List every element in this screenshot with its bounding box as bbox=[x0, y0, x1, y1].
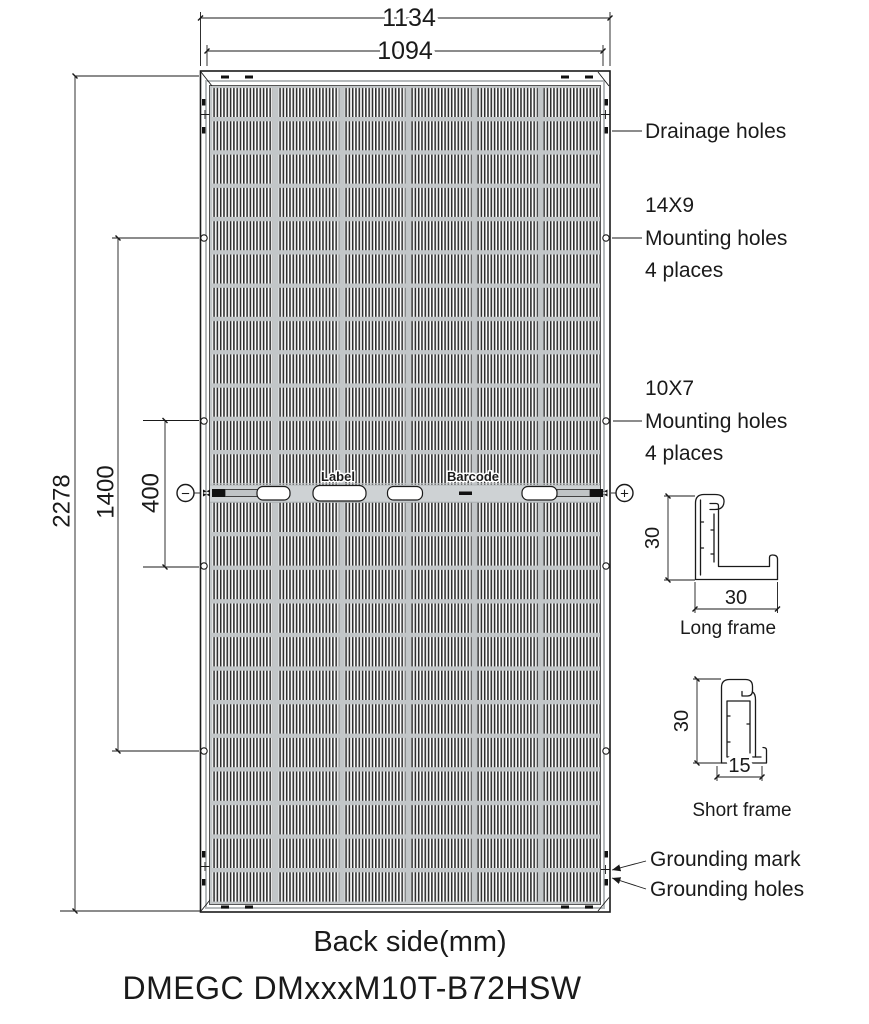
callout-drainage: Drainage holes bbox=[612, 120, 786, 143]
label-sticker bbox=[313, 486, 366, 502]
dim-overall-width-value: 1134 bbox=[382, 4, 436, 32]
grounding-holes-label: Grounding holes bbox=[650, 878, 804, 901]
dim-glass-width-value: 1094 bbox=[377, 37, 433, 65]
callout-grounding-mark: Grounding mark bbox=[612, 848, 801, 871]
callout-grounding-holes: Grounding holes bbox=[612, 878, 804, 901]
junction-box-3 bbox=[522, 487, 557, 501]
dim-glass-width: 1094 bbox=[207, 37, 603, 66]
positive-terminal-sign: + bbox=[620, 486, 629, 503]
mounting-14x9-name: Mounting holes bbox=[645, 227, 787, 250]
mounting-10x7-name: Mounting holes bbox=[645, 410, 787, 433]
cable-right bbox=[557, 490, 590, 497]
dim-span-1400-value: 1400 bbox=[93, 465, 120, 518]
long-frame-detail: 30 30 Long frame bbox=[642, 495, 778, 640]
long-frame-height-value: 30 bbox=[642, 527, 664, 549]
dim-overall-height-value: 2278 bbox=[49, 474, 76, 527]
short-frame-detail: 30 15 Short frame bbox=[671, 679, 792, 821]
solar-panel-back-drawing: Label Barcode − + 1134 1094 2278 1400 40… bbox=[0, 0, 869, 1024]
mounting-14x9-size: 14X9 bbox=[645, 194, 694, 217]
negative-terminal-sign: − bbox=[181, 486, 190, 503]
junction-box-2 bbox=[388, 487, 423, 501]
short-frame-profile-hook bbox=[722, 680, 753, 764]
callout-mounting-14x9: 14X9 Mounting holes 4 places bbox=[612, 194, 787, 282]
label-sticker-label: Label bbox=[321, 469, 355, 484]
long-frame-width-value: 30 bbox=[725, 587, 747, 609]
model-number: DMEGC DMxxxM10T-B72HSW bbox=[122, 970, 581, 1006]
short-frame-profile-outer bbox=[722, 692, 767, 763]
dim-span-400-value: 400 bbox=[138, 473, 165, 513]
long-frame-label: Long frame bbox=[680, 618, 776, 639]
short-frame-label: Short frame bbox=[692, 800, 791, 821]
view-title: Back side(mm) bbox=[313, 926, 506, 958]
junction-box-1 bbox=[257, 487, 290, 501]
long-frame-cavity-lines bbox=[701, 500, 715, 575]
barcode-mark bbox=[459, 492, 472, 496]
technical-drawing-page: Label Barcode − + 1134 1094 2278 1400 40… bbox=[0, 0, 869, 1024]
barcode-label: Barcode bbox=[447, 469, 499, 484]
mounting-14x9-places: 4 places bbox=[645, 259, 723, 282]
cable-left bbox=[225, 490, 258, 497]
short-frame-height-value: 30 bbox=[671, 710, 693, 732]
long-frame-profile-inner bbox=[710, 504, 778, 580]
mounting-10x7-places: 4 places bbox=[645, 442, 723, 465]
connector-left bbox=[212, 489, 225, 497]
callout-mounting-10x7: 10X7 Mounting holes 4 places bbox=[613, 377, 787, 465]
callout-drainage-label: Drainage holes bbox=[645, 120, 786, 143]
short-frame-width-value: 15 bbox=[728, 755, 750, 777]
grounding-mark-label: Grounding mark bbox=[650, 848, 801, 871]
mounting-10x7-size: 10X7 bbox=[645, 377, 694, 400]
